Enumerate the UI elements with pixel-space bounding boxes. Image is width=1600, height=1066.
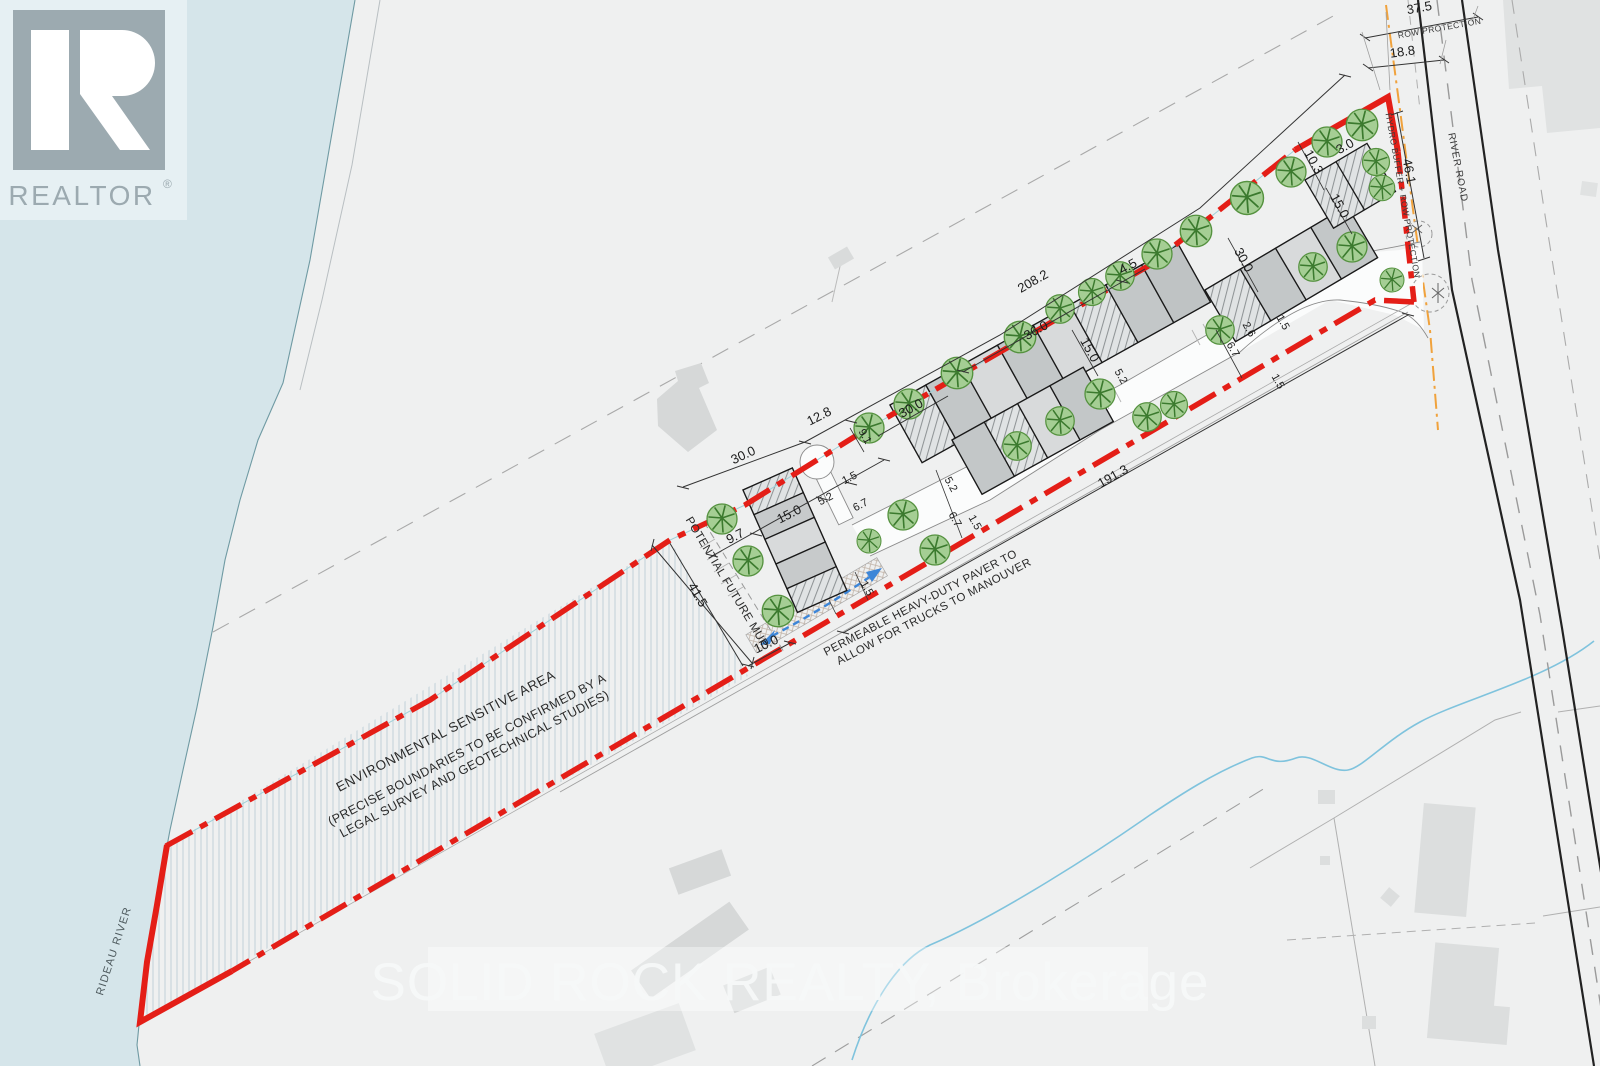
realtor-logo-text: REALTOR bbox=[8, 180, 155, 211]
site-plan-page: 208.2 191.3 41.5 10.0 37.5 ROW PROTECTIO… bbox=[0, 0, 1600, 1066]
watermark-text: SOLID ROCK REALTY, Brokerage bbox=[370, 953, 1209, 1012]
site-plan-drawing: 208.2 191.3 41.5 10.0 37.5 ROW PROTECTIO… bbox=[0, 0, 1600, 1066]
realtor-logo: REALTOR ® bbox=[0, 0, 187, 220]
watermark: SOLID ROCK REALTY, Brokerage bbox=[370, 947, 1209, 1012]
registered-mark: ® bbox=[163, 177, 172, 191]
